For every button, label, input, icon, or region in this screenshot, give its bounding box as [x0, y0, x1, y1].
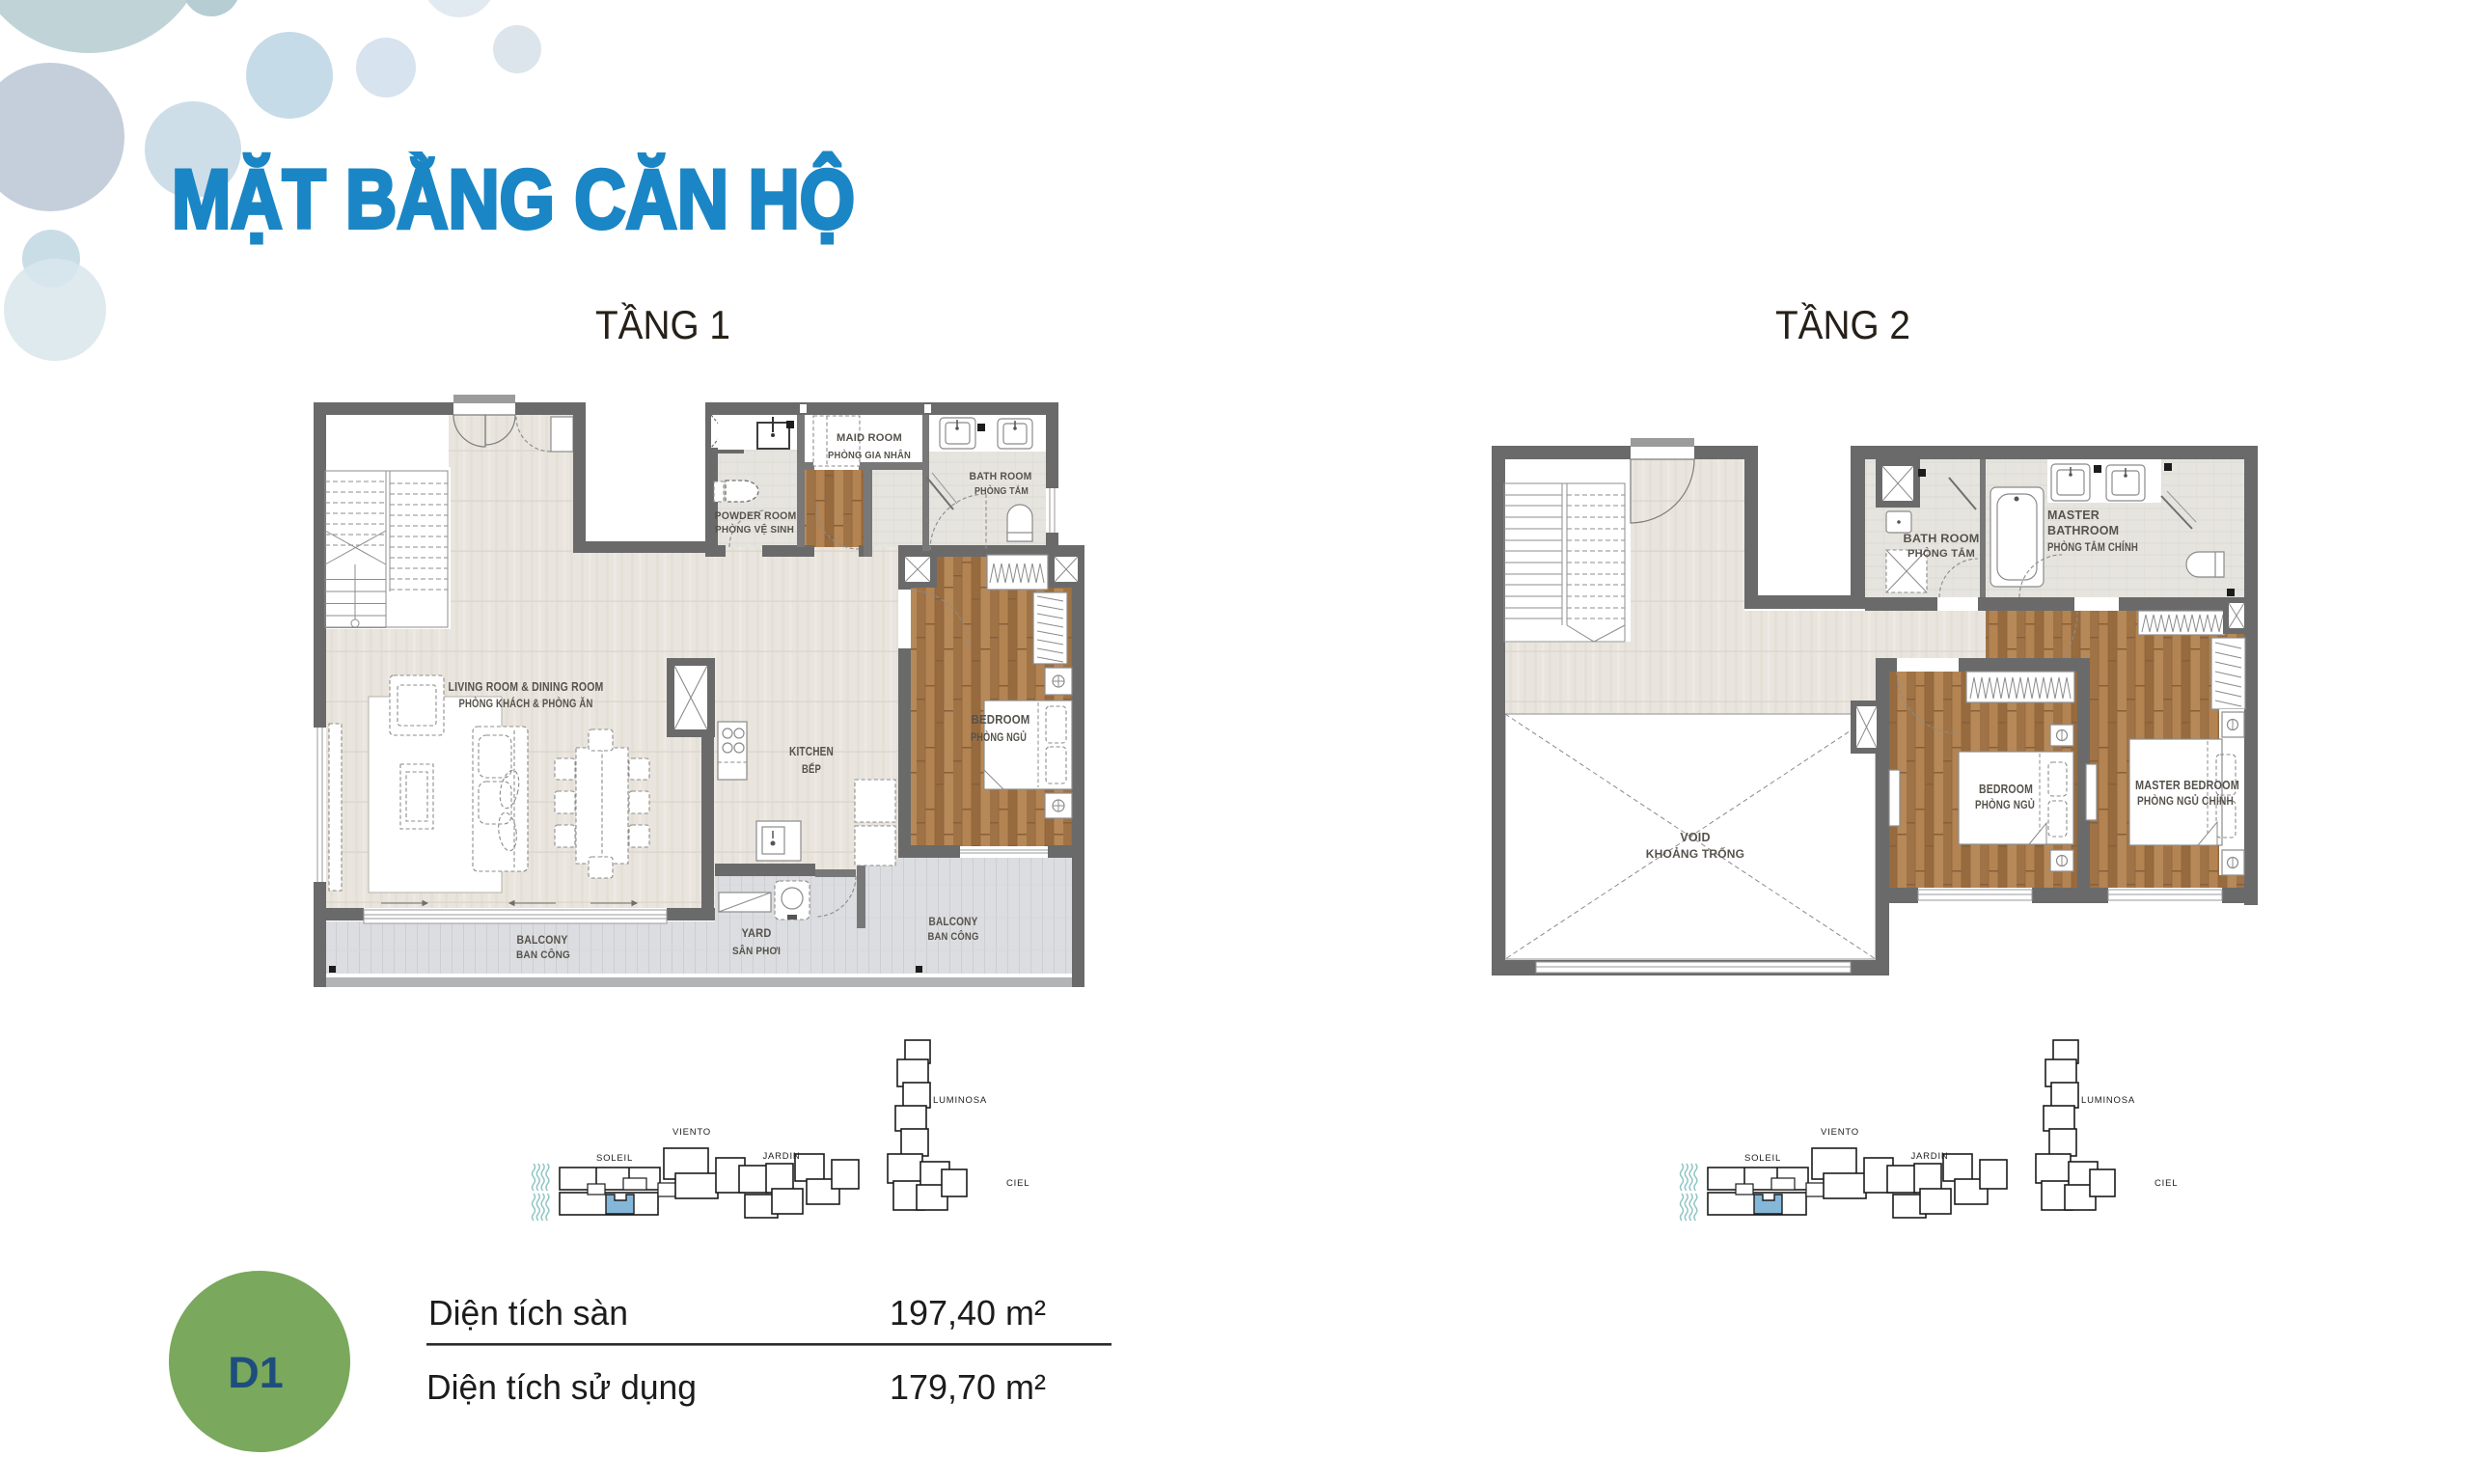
svg-text:MẶT BẰNG CĂN HỘ: MẶT BẰNG CĂN HỘ	[172, 153, 855, 246]
svg-text:D1: D1	[228, 1348, 284, 1397]
svg-text:BEDROOM: BEDROOM	[972, 713, 1030, 727]
svg-text:MASTER BEDROOM: MASTER BEDROOM	[2135, 778, 2239, 792]
svg-text:YARD: YARD	[742, 928, 772, 940]
svg-text:PHÒNG KHÁCH & PHÒNG ĂN: PHÒNG KHÁCH & PHÒNG ĂN	[459, 696, 593, 710]
svg-text:JARDIN: JARDIN	[1910, 1151, 1948, 1162]
svg-text:VIENTO: VIENTO	[1821, 1127, 1859, 1138]
svg-text:BALCONY: BALCONY	[517, 935, 568, 947]
svg-text:JARDIN: JARDIN	[762, 1151, 800, 1162]
svg-text:BẾP: BẾP	[802, 761, 821, 776]
svg-text:BAN CÔNG: BAN CÔNG	[516, 948, 570, 961]
svg-text:BATH ROOM: BATH ROOM	[1904, 534, 1980, 545]
svg-text:LUMINOSA: LUMINOSA	[2081, 1095, 2135, 1106]
svg-text:PHÒNG NGỦ: PHÒNG NGỦ	[971, 729, 1027, 744]
svg-text:PHÒNG NGỦ CHÍNH: PHÒNG NGỦ CHÍNH	[2137, 793, 2234, 808]
svg-text:PHÒNG TẮM: PHÒNG TẮM	[1907, 547, 1975, 560]
svg-text:SOLEIL: SOLEIL	[1744, 1153, 1781, 1164]
svg-text:BEDROOM: BEDROOM	[1979, 782, 2033, 796]
svg-text:BATH ROOM: BATH ROOM	[970, 471, 1032, 482]
svg-text:LIVING ROOM & DINING ROOM: LIVING ROOM & DINING ROOM	[449, 680, 604, 694]
svg-text:Diện tích sử dụng: Diện tích sử dụng	[426, 1367, 697, 1407]
svg-text:CIEL: CIEL	[1006, 1178, 1029, 1189]
svg-text:PHÒNG TẮM CHÍNH: PHÒNG TẮM CHÍNH	[2047, 539, 2138, 554]
svg-text:TẦNG 2: TẦNG 2	[1775, 302, 1910, 347]
svg-text:Diện tích sàn: Diện tích sàn	[428, 1293, 628, 1333]
svg-text:LUMINOSA: LUMINOSA	[933, 1095, 987, 1106]
svg-text:KITCHEN: KITCHEN	[789, 745, 834, 758]
svg-text:197,40 m²: 197,40 m²	[890, 1293, 1046, 1333]
svg-text:PHÒNG NGỦ: PHÒNG NGỦ	[1975, 797, 2035, 811]
svg-text:PHÒNG TẮM: PHÒNG TẮM	[974, 484, 1029, 497]
svg-text:MAID ROOM: MAID ROOM	[837, 432, 902, 444]
svg-text:BAN CÔNG: BAN CÔNG	[928, 930, 979, 943]
svg-text:BATHROOM: BATHROOM	[2047, 524, 2119, 537]
svg-text:PHÒNG VỆ SINH: PHÒNG VỆ SINH	[715, 523, 794, 536]
svg-text:POWDER ROOM: POWDER ROOM	[715, 510, 797, 522]
svg-text:BALCONY: BALCONY	[929, 917, 978, 928]
svg-text:VOID: VOID	[1680, 831, 1710, 844]
svg-text:TẦNG 1: TẦNG 1	[595, 302, 730, 347]
svg-text:VIENTO: VIENTO	[672, 1127, 711, 1138]
svg-text:SÂN PHƠI: SÂN PHƠI	[732, 945, 781, 957]
svg-text:KHOẢNG TRỐNG: KHOẢNG TRỐNG	[1646, 846, 1744, 861]
svg-text:SOLEIL: SOLEIL	[596, 1153, 633, 1164]
svg-text:MASTER: MASTER	[2047, 508, 2099, 522]
svg-text:PHÒNG GIA NHÂN: PHÒNG GIA NHÂN	[828, 449, 911, 461]
svg-text:179,70 m²: 179,70 m²	[890, 1367, 1046, 1407]
svg-text:CIEL: CIEL	[2154, 1178, 2178, 1189]
